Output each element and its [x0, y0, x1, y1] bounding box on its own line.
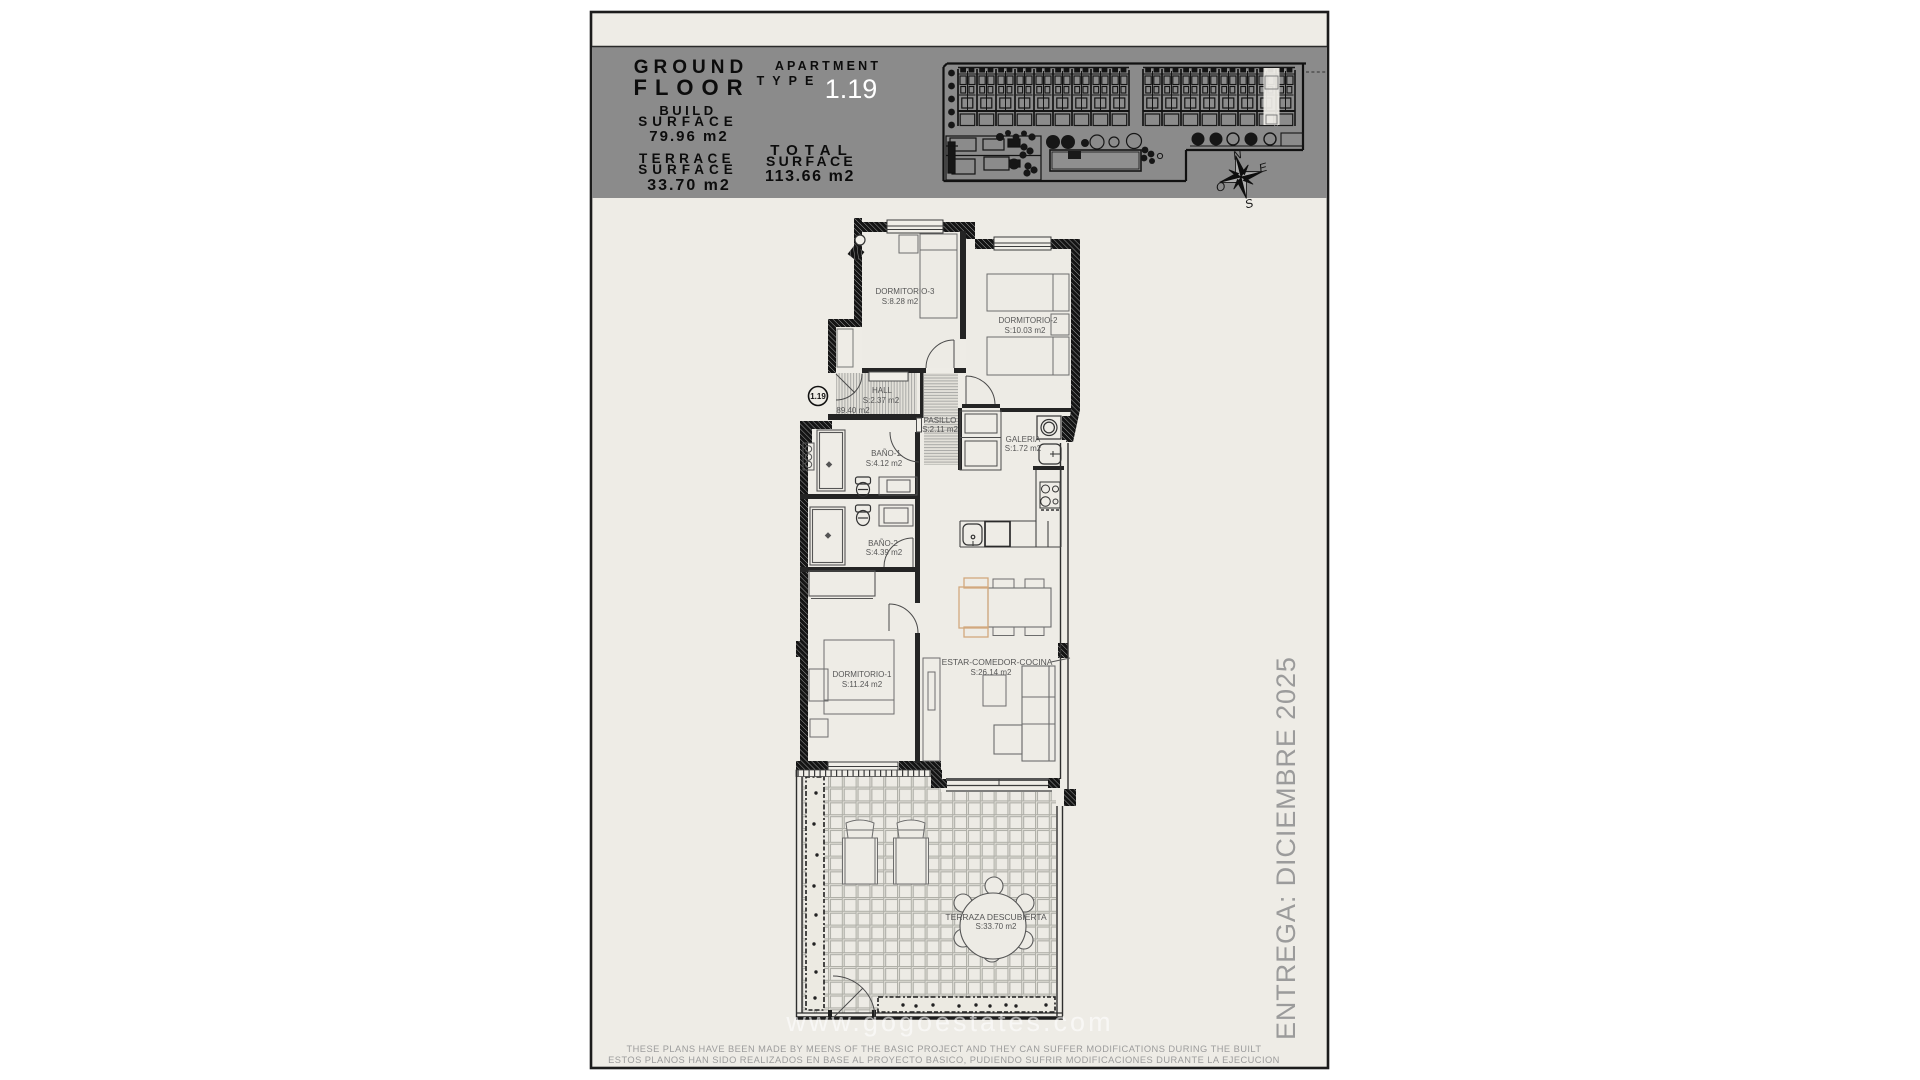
svg-text:DORMITORIO-2: DORMITORIO-2: [999, 316, 1059, 325]
svg-text:GALERIA: GALERIA: [1006, 435, 1041, 444]
svg-text:ESTOS PLANOS HAN SIDO REALIZAD: ESTOS PLANOS HAN SIDO REALIZADOS EN BASE…: [608, 1055, 1280, 1065]
svg-text:S:33.70 m2: S:33.70 m2: [976, 922, 1017, 931]
svg-text:S:2.37 m2: S:2.37 m2: [863, 396, 900, 405]
svg-text:BAÑO-2: BAÑO-2: [868, 539, 898, 548]
svg-text:S:2.11 m2: S:2.11 m2: [922, 425, 958, 434]
svg-text:HALL: HALL: [872, 386, 893, 395]
svg-text:1.19: 1.19: [810, 392, 826, 401]
svg-text:S:10.03 m2: S:10.03 m2: [1005, 326, 1046, 335]
svg-text:113.66 m2: 113.66 m2: [765, 168, 855, 185]
svg-text:79.96 m2: 79.96 m2: [649, 128, 728, 145]
svg-text:S:11.24 m2: S:11.24 m2: [842, 680, 883, 689]
svg-text:DORMITORIO-3: DORMITORIO-3: [876, 287, 936, 296]
svg-text:TYPE: TYPE: [757, 74, 822, 88]
svg-text:FLOOR: FLOOR: [634, 75, 751, 100]
svg-text:SURFACE: SURFACE: [638, 162, 738, 177]
svg-text:THESE PLANS HAVE BEEN MADE BY: THESE PLANS HAVE BEEN MADE BY MEENS OF T…: [627, 1044, 1262, 1054]
svg-text:TERRAZA DESCUBIERTA: TERRAZA DESCUBIERTA: [945, 912, 1047, 922]
svg-text:1.19: 1.19: [825, 74, 878, 104]
svg-text:www.gogoestates.com: www.gogoestates.com: [785, 1007, 1113, 1037]
svg-text:ESTAR-COMEDOR-COCINA: ESTAR-COMEDOR-COCINA: [942, 657, 1053, 667]
svg-text:S:26.14 m2: S:26.14 m2: [971, 668, 1012, 677]
svg-text:SURFACE: SURFACE: [766, 153, 856, 169]
svg-text:ENTREGA: DICIEMBRE 2025: ENTREGA: DICIEMBRE 2025: [1271, 656, 1301, 1040]
svg-text:S:1.72 m2: S:1.72 m2: [1005, 444, 1042, 453]
svg-text:DORMITORIO-1: DORMITORIO-1: [833, 670, 893, 679]
svg-text:33.70 m2: 33.70 m2: [647, 177, 731, 194]
svg-text:APARTMENT: APARTMENT: [775, 59, 881, 73]
svg-text:S:8.28 m2: S:8.28 m2: [882, 297, 919, 306]
svg-text:SURFACE: SURFACE: [638, 114, 738, 129]
svg-text:BAÑO-1: BAÑO-1: [871, 449, 901, 458]
svg-text:PASILLO: PASILLO: [924, 416, 957, 425]
svg-text:89.40 m2: 89.40 m2: [836, 406, 870, 415]
svg-text:S:4.12 m2: S:4.12 m2: [866, 459, 903, 468]
svg-text:S:4.39 m2: S:4.39 m2: [866, 548, 903, 557]
